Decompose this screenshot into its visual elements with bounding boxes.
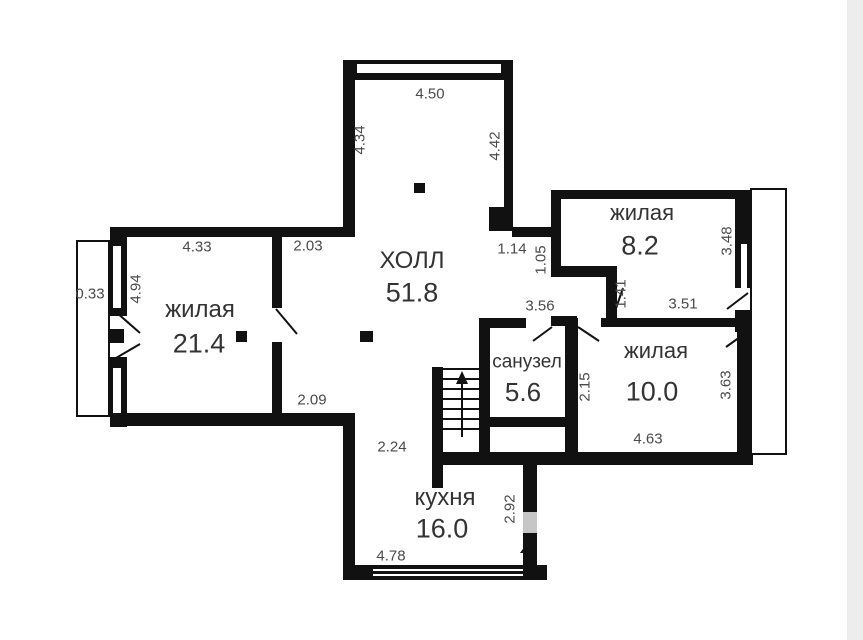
- door-swing: [533, 327, 552, 341]
- room-label-living-left-area: 21.4: [173, 331, 226, 358]
- room-label-hall-area: 51.8: [386, 280, 439, 307]
- wall: [479, 318, 526, 328]
- dim-corridor-right: 3.51: [668, 297, 697, 312]
- wall: [110, 227, 343, 237]
- floor-plan: ХОЛЛ 51.8 жилая 21.4 жилая 8.2 жилая 10.…: [0, 0, 863, 640]
- dim-hall-upper-left: 2.03: [293, 239, 322, 254]
- room-label-living-right-area: 10.0: [626, 379, 679, 406]
- wall-door-post: [551, 316, 577, 326]
- wall: [110, 227, 127, 246]
- wall: [110, 308, 127, 316]
- room-label-kitchen-area: 16.0: [416, 516, 469, 543]
- wall: [110, 413, 355, 426]
- dim-hall-lower-left: 2.09: [297, 393, 326, 408]
- wall-pillar: [108, 329, 124, 343]
- column: [236, 331, 247, 342]
- wall: [479, 417, 578, 427]
- staircase: [443, 368, 480, 438]
- dim-living-top-right: 3.48: [720, 226, 735, 255]
- room-label-hall-name: ХОЛЛ: [379, 249, 444, 273]
- wall: [737, 330, 750, 455]
- window: [373, 565, 523, 580]
- wall: [551, 190, 561, 277]
- dim-kitchen-side: 2.92: [503, 494, 518, 523]
- dim-niche-height: 1.05: [534, 245, 549, 274]
- wall: [110, 357, 127, 368]
- column: [360, 331, 373, 342]
- dim-kitchen-entry: 2.24: [377, 440, 406, 455]
- dim-corridor-left: 3.56: [525, 299, 554, 314]
- dim-living-right-bottom: 4.63: [633, 432, 662, 447]
- dim-living-right-side: 3.63: [719, 370, 734, 399]
- wall: [551, 190, 751, 199]
- wall: [504, 60, 513, 230]
- dim-living-left-side: 4.94: [129, 274, 144, 303]
- wall: [343, 565, 373, 580]
- column: [414, 183, 425, 193]
- door-opening: [523, 512, 537, 533]
- window: [110, 368, 127, 417]
- room-label-living-top-name: жилая: [610, 202, 674, 224]
- dim-bathroom-side: 2.15: [578, 372, 593, 401]
- wall: [601, 318, 741, 327]
- wall: [735, 198, 750, 244]
- wall: [432, 452, 753, 465]
- dim-niche-width: 1.14: [497, 242, 526, 257]
- wall: [272, 342, 282, 414]
- window: [110, 246, 127, 308]
- page-edge: [847, 0, 863, 640]
- balcony-outline: [750, 188, 787, 455]
- dim-hall-right: 4.42: [488, 131, 503, 160]
- door-swing: [727, 293, 748, 309]
- window: [735, 244, 750, 288]
- room-label-bathroom-name: санузел: [492, 353, 562, 372]
- wall: [523, 565, 547, 580]
- door-swing: [276, 309, 297, 334]
- wall: [432, 367, 443, 488]
- dim-kitchen-bottom: 4.78: [376, 549, 405, 564]
- room-label-living-left-name: жилая: [165, 298, 235, 322]
- dim-balcony-left: 0.33: [75, 287, 104, 302]
- shaft-column: [489, 207, 513, 231]
- door-swing: [578, 327, 599, 341]
- dim-hall-left: 4.34: [353, 125, 368, 154]
- room-label-bathroom-area: 5.6: [505, 379, 541, 405]
- wall: [512, 227, 553, 237]
- door-swing: [116, 344, 140, 358]
- dim-living-top-door: 1.41: [614, 279, 629, 308]
- wall: [272, 227, 282, 308]
- dim-living-left-top: 4.33: [182, 240, 211, 255]
- room-label-living-top-area: 8.2: [621, 233, 659, 260]
- wall: [523, 455, 537, 567]
- window: [355, 60, 503, 80]
- dim-hall-top: 4.50: [415, 87, 444, 102]
- balcony-outline: [76, 240, 110, 417]
- room-label-kitchen-name: кухня: [414, 486, 475, 510]
- wall: [479, 320, 490, 453]
- wall: [343, 418, 355, 580]
- room-label-living-right-name: жилая: [624, 340, 688, 362]
